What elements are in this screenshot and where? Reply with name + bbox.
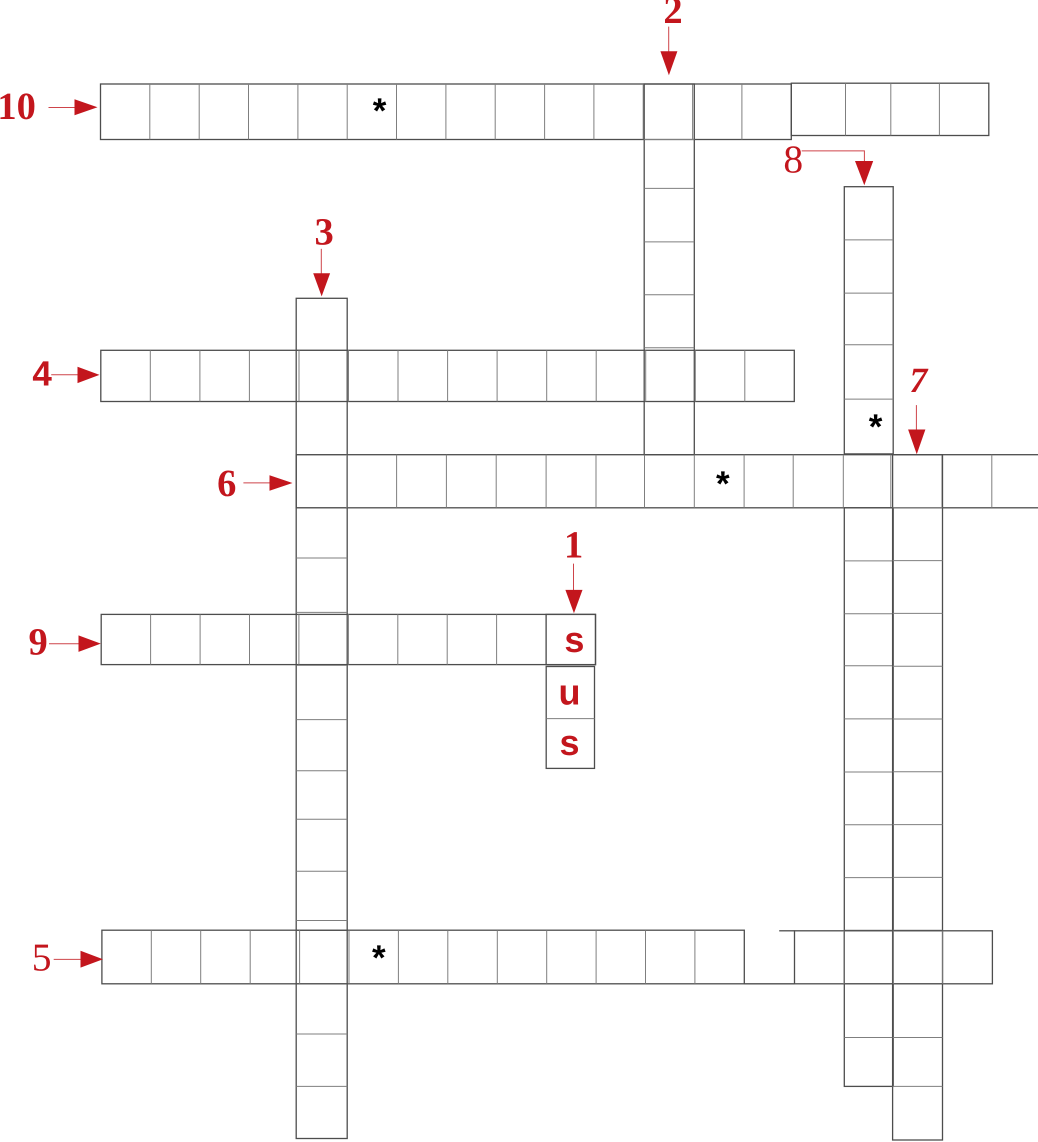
- svg-text:2: 2: [663, 0, 682, 32]
- svg-text:7: 7: [910, 360, 929, 400]
- svg-text:3: 3: [315, 212, 334, 254]
- svg-text:s: s: [564, 619, 584, 660]
- svg-text:*: *: [372, 939, 386, 978]
- svg-text:*: *: [869, 408, 883, 447]
- svg-text:4: 4: [32, 355, 52, 394]
- svg-text:1: 1: [564, 525, 583, 567]
- svg-text:6: 6: [217, 463, 236, 505]
- svg-text:*: *: [716, 465, 730, 504]
- svg-text:9: 9: [28, 622, 47, 664]
- svg-text:5: 5: [32, 936, 52, 980]
- svg-text:u: u: [559, 672, 581, 713]
- svg-text:s: s: [559, 722, 579, 763]
- svg-text:10: 10: [0, 86, 36, 128]
- svg-text:8: 8: [783, 138, 803, 182]
- svg-text:*: *: [373, 92, 387, 131]
